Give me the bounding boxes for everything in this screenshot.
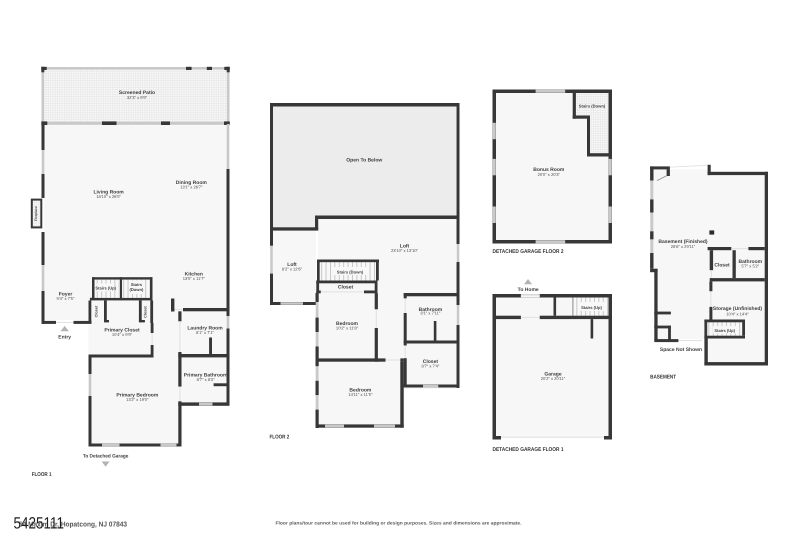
svg-text:32'3" x 9'9": 32'3" x 9'9": [127, 95, 148, 100]
svg-text:9'4" x 7'5": 9'4" x 7'5": [57, 296, 75, 301]
svg-text:8'7" x 7'4": 8'7" x 7'4": [421, 363, 439, 368]
svg-text:Closet: Closet: [714, 263, 730, 269]
svg-text:Closet: Closet: [144, 305, 148, 317]
svg-text:5425111: 5425111: [14, 515, 65, 533]
svg-text:13'5" x 11'7": 13'5" x 11'7": [183, 276, 206, 281]
svg-text:Floor plans/tour cannot be use: Floor plans/tour cannot be used for buil…: [276, 521, 522, 526]
svg-text:Stairs (Down): Stairs (Down): [579, 104, 606, 109]
svg-text:Entry: Entry: [58, 334, 71, 340]
svg-text:Stairs (Down): Stairs (Down): [337, 269, 364, 274]
svg-text:20'2" x 20'11": 20'2" x 20'11": [541, 376, 566, 381]
svg-text:8'7" x 8'3": 8'7" x 8'3": [197, 377, 215, 382]
svg-text:BASEMENT: BASEMENT: [650, 374, 677, 380]
svg-text:(Down): (Down): [129, 287, 144, 292]
svg-text:8'2" x 12'6": 8'2" x 12'6": [282, 266, 303, 271]
svg-text:13'1" x 26'7": 13'1" x 26'7": [180, 185, 203, 190]
svg-text:10'4" x 14'4": 10'4" x 14'4": [726, 311, 749, 316]
svg-text:10'2" x 11'8": 10'2" x 11'8": [336, 325, 359, 330]
svg-text:Space Not Shown: Space Not Shown: [660, 347, 702, 353]
svg-text:DETACHED GARAGE FLOOR 1: DETACHED GARAGE FLOOR 1: [493, 447, 564, 453]
svg-text:Open To Below: Open To Below: [346, 157, 382, 163]
svg-text:28'6" x 29'11": 28'6" x 29'11": [671, 244, 696, 249]
svg-text:DETACHED GARAGE FLOOR 2: DETACHED GARAGE FLOOR 2: [493, 249, 564, 255]
svg-text:Closet: Closet: [338, 285, 354, 291]
svg-text:To Home: To Home: [518, 287, 539, 293]
svg-text:10'4" x 9'9": 10'4" x 9'9": [112, 332, 133, 337]
svg-text:14'11" x 11'5": 14'11" x 11'5": [348, 392, 373, 397]
svg-text:Closet: Closet: [95, 305, 99, 317]
svg-text:Stairs (Up): Stairs (Up): [95, 286, 116, 291]
svg-text:8'1" x 7'11": 8'1" x 7'11": [420, 310, 440, 315]
svg-text:Stairs (Up): Stairs (Up): [714, 328, 735, 333]
svg-text:23'10" x 13'10": 23'10" x 13'10": [391, 248, 419, 253]
svg-text:FLOOR 1: FLOOR 1: [32, 472, 52, 478]
svg-text:20'0" x 20'3": 20'0" x 20'3": [538, 172, 561, 177]
svg-text:8'1" x 7'1": 8'1" x 7'1": [196, 330, 214, 335]
svg-text:5'7" x 5'2": 5'7" x 5'2": [741, 264, 759, 269]
svg-text:Stairs (Up): Stairs (Up): [581, 305, 602, 310]
svg-text:18'10" x 26'5": 18'10" x 26'5": [96, 194, 121, 199]
svg-text:Fireplace: Fireplace: [34, 206, 38, 221]
svg-text:To Detached Garage: To Detached Garage: [83, 453, 129, 459]
svg-text:13'2" x 19'0": 13'2" x 19'0": [126, 397, 149, 402]
svg-text:FLOOR 2: FLOOR 2: [270, 435, 290, 441]
